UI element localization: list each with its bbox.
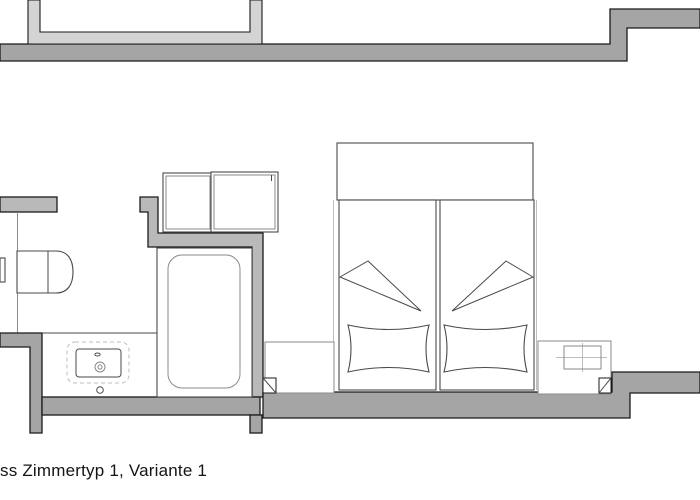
wardrobe-right — [211, 172, 278, 232]
bed-headboard — [337, 143, 533, 200]
toilet — [17, 251, 73, 293]
drain-icon-inner — [98, 365, 102, 369]
double-bed — [334, 143, 537, 390]
wall-niche-top — [28, 0, 262, 44]
faucet-icon — [95, 353, 100, 356]
washbasin-group — [42, 333, 157, 393]
window-reveal-left — [263, 378, 276, 393]
bathroom-bottom-left-wall — [0, 333, 42, 433]
bathtub — [157, 248, 252, 397]
bathroom-bottom-wall-stub — [250, 415, 262, 433]
entry-wall-stub — [0, 197, 57, 212]
pillow-right — [444, 325, 527, 372]
floor-plan-drawing — [0, 0, 700, 500]
plan-caption: ss Zimmertyp 1, Variante 1 — [0, 461, 207, 481]
toilet-group — [0, 251, 73, 293]
flush-plate — [0, 258, 5, 282]
wardrobe-left — [163, 173, 213, 232]
floor-drain-icon — [97, 387, 104, 394]
floor-plan-page: ss Zimmertyp 1, Variante 1 — [0, 0, 700, 500]
wardrobe-right-outline — [211, 172, 278, 232]
window-reveal-right — [599, 378, 611, 393]
bathroom-bottom-wall — [42, 397, 260, 415]
wardrobe-left-outline — [163, 173, 213, 232]
bathtub-group — [157, 248, 252, 397]
drain-icon — [95, 362, 105, 372]
pillow-left — [348, 325, 429, 372]
